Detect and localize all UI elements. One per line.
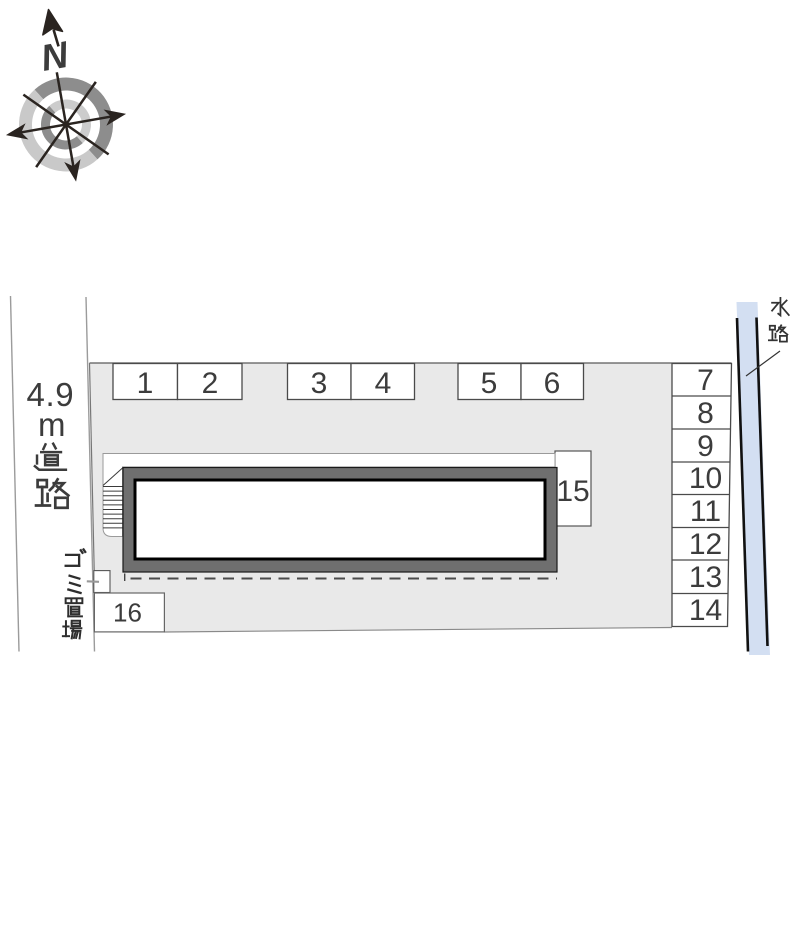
svg-text:14: 14	[689, 594, 722, 627]
svg-text:3: 3	[311, 367, 328, 400]
svg-text:6: 6	[544, 367, 561, 400]
svg-text:m: m	[38, 406, 66, 443]
svg-text:8: 8	[697, 397, 714, 430]
svg-text:2: 2	[202, 367, 219, 400]
svg-text:9: 9	[697, 430, 714, 463]
svg-text:10: 10	[689, 462, 722, 495]
svg-text:5: 5	[481, 367, 498, 400]
svg-text:7: 7	[697, 364, 714, 397]
svg-text:15: 15	[556, 475, 589, 508]
svg-text:12: 12	[689, 528, 722, 561]
svg-text:4: 4	[375, 367, 392, 400]
svg-text:13: 13	[689, 561, 722, 594]
svg-text:11: 11	[690, 495, 721, 528]
svg-text:16: 16	[113, 598, 142, 628]
svg-text:N: N	[38, 34, 73, 79]
svg-text:1: 1	[137, 367, 154, 400]
